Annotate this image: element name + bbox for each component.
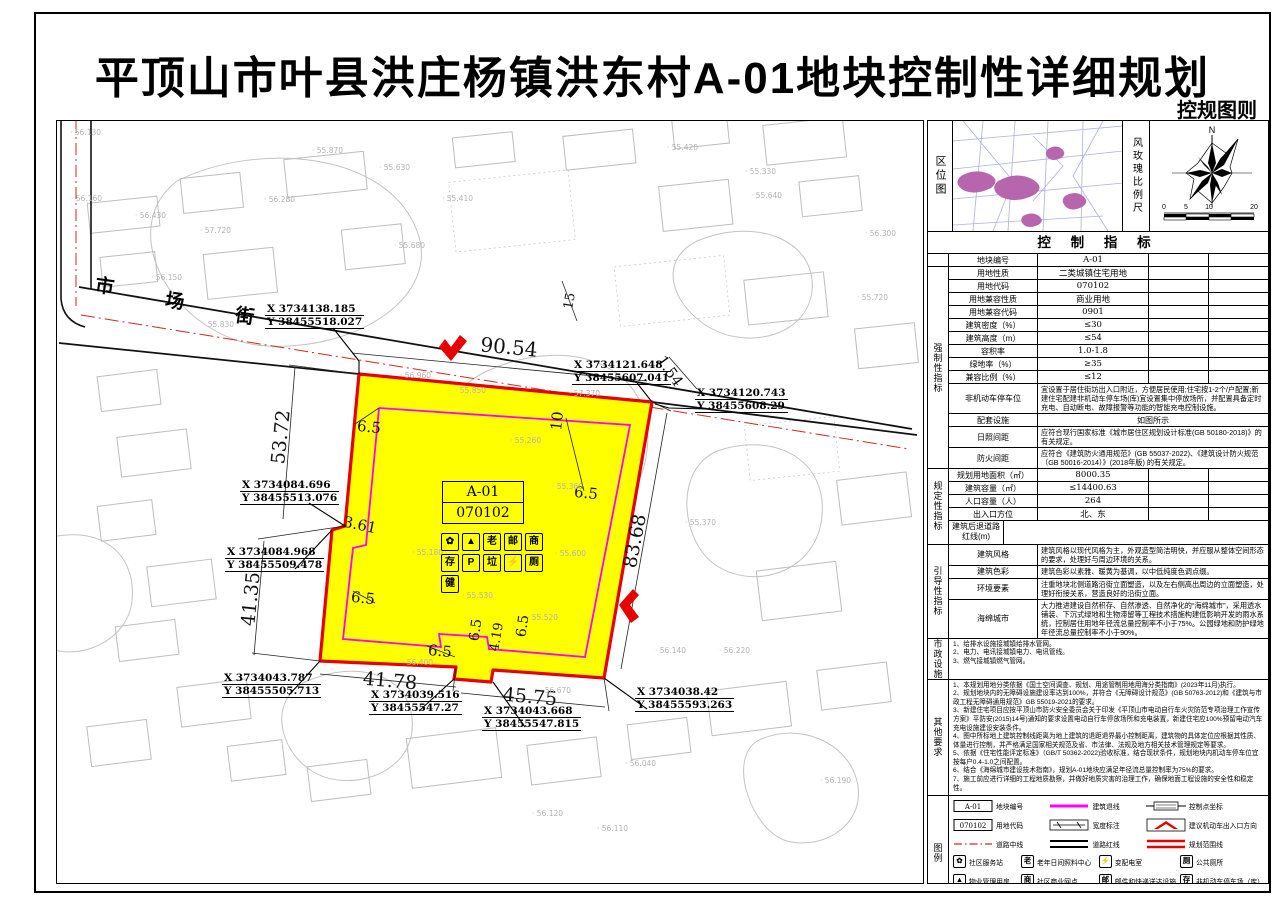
row-value: 应符合《建筑防火通用规范》(GB 55037-2022)、《建筑设计防火规范（G… — [1038, 448, 1268, 468]
row-label: 非机动车停车位 — [949, 384, 1038, 413]
property-management-icon: ▲ — [462, 533, 480, 551]
mail-delivery-icon: 邮 — [504, 533, 522, 551]
requirement-line: 2、电力、电讯接城镇电力、电讯管线。 — [953, 649, 1264, 658]
legend-item: 邮邮件和快递送达设施 — [1099, 874, 1178, 883]
empty-cell — [1209, 280, 1268, 292]
spot-elevation: · 55.360 — [552, 482, 583, 491]
dimension-label: 10 — [547, 411, 567, 432]
legend-icon-items: ✿社区服务站老老年日间照料中心⚡变配电室厕公共厕所▲物业管理用房商社区商业网点邮… — [953, 855, 1264, 883]
legend-item: ⚡变配电室 — [1099, 855, 1178, 868]
empty-cell — [1209, 371, 1268, 383]
spot-elevation: · 56.220 — [719, 646, 750, 655]
scale-tick: 0 — [1162, 204, 1166, 211]
empty-cell — [1209, 332, 1268, 344]
legend-item: 存非机动车停车场（库） — [1180, 874, 1264, 883]
dimension-label: 83.68 — [619, 512, 651, 570]
row-value: A-01 — [1038, 254, 1149, 266]
row-label: 用地兼容代码 — [949, 306, 1038, 318]
empty-cell — [1149, 469, 1209, 481]
requirement-line: 3、燃气接城镇燃气管网。 — [953, 658, 1264, 667]
legend-item-label: 邮件和快递送达设施 — [1115, 876, 1176, 883]
legend-item-label: 用地代码 — [996, 820, 1023, 830]
control-point-coordinate: X 3734043.787Y 38455505.713 — [222, 672, 321, 698]
legend-item: 道路红线 — [1049, 837, 1143, 851]
legend-content: A-01地块编号建筑退线控制点坐标070102用地代码宽度标注建议机动车出入口方… — [949, 796, 1268, 883]
row-label: 日照间距 — [949, 427, 1038, 447]
elderly-daycare-icon: 老 — [1021, 855, 1034, 868]
community-business-icon: 商 — [525, 533, 543, 551]
spot-elevation: · 56.670 — [540, 686, 571, 695]
table-row: 防火间距应符合《建筑防火通用规范》(GB 55037-2022)、《建筑设计防火… — [949, 448, 1268, 468]
legend-line-items: A-01地块编号建筑退线控制点坐标070102用地代码宽度标注建议机动车出入口方… — [953, 799, 1264, 851]
table-row: 兼容比例（%）≤12 — [949, 371, 1268, 384]
control-point-coordinate: X 3734084.696Y 38455513.076 — [240, 479, 339, 505]
empty-cell — [1149, 508, 1209, 520]
scale-tick: 20 — [1250, 204, 1258, 211]
control-point-coordinate: X 3734120.743Y 38455608.29 — [695, 387, 788, 413]
row-value: ≤14400.63 — [1038, 482, 1149, 494]
table-row: 建筑容量（㎡）≤14400.63 — [949, 482, 1268, 495]
control-table: 地块编号A-01强制性指标用地性质二类城镇住宅用地用地代码070102用地兼容性… — [928, 254, 1268, 883]
section-group-label: 市政设施 — [928, 639, 949, 679]
row-label: 兼容比例（%） — [949, 371, 1038, 383]
empty-cell — [1149, 254, 1209, 266]
community-service-station-icon: ✿ — [441, 533, 459, 551]
dimension-label: 6.5 — [467, 618, 486, 642]
spot-elevation: · 55.180 — [412, 548, 443, 557]
legend-item-label: 地块编号 — [996, 801, 1023, 811]
row-value: 大力推进建设自然积存、自然渗透、自然净化的“海绵城市”，采用透水铺装、下沉式绿地… — [1038, 600, 1268, 638]
section-group-label: 引导性指标 — [928, 545, 949, 638]
empty-cell — [1209, 345, 1268, 357]
row-value: 商业用地 — [1038, 293, 1149, 305]
community-business-icon: 商 — [1021, 874, 1034, 883]
plot-label-box: A-01 070102 — [442, 481, 524, 524]
empty-cell — [1149, 332, 1209, 344]
requirement-line: 2、规划地块内的无障碍设施建设率达到100%，并符合《无障碍设计规范》(GB 5… — [953, 690, 1264, 707]
other-requirements-text: 1、本规划用地分类依据《国土空间调查、规划、用途管制用地用海分类指南》(2023… — [949, 680, 1268, 795]
coord-x: X 3734043.668 — [482, 705, 581, 718]
legend-item-label: 物业管理用房 — [969, 876, 1010, 883]
table-section: 强制性指标用地性质二类城镇住宅用地用地代码070102用地兼容性质商业用地用地兼… — [928, 267, 1268, 469]
coord-y: Y 38455593.263 — [635, 699, 734, 712]
dimension-label: 4.19 — [487, 621, 507, 652]
coord-y: Y 38455513.076 — [240, 492, 339, 505]
control-point-coordinate: X 3734038.42Y 38455593.263 — [635, 686, 734, 712]
empty-cell — [1149, 267, 1209, 279]
spot-elevation: · 55.530 — [462, 591, 493, 600]
property-management-icon: ▲ — [953, 874, 966, 883]
dimension-label: 53.72 — [267, 409, 295, 465]
coord-y: Y 38455518.027 — [265, 316, 364, 329]
section-group-label: 规定性指标 — [928, 469, 949, 544]
coord-x: X 3734084.696 — [240, 479, 339, 492]
coord-x: X 3734039.516 — [369, 689, 462, 702]
table-row: 用地兼容代码0901 — [949, 306, 1268, 319]
legend-item: 老老年日间照料中心 — [1021, 855, 1097, 868]
section-group-label — [928, 254, 949, 266]
row-label: 防火间距 — [949, 448, 1038, 468]
spot-elevation: · 57.720 — [200, 226, 231, 235]
row-label: 海绵城市 — [949, 600, 1038, 638]
legend-item: 建议机动车出入口方向 — [1146, 818, 1264, 832]
row-label: 用地代码 — [949, 280, 1038, 292]
spot-elevation: · 55.600 — [555, 549, 586, 558]
spot-elevation: · 56.110 — [597, 824, 628, 833]
row-value: ≤12 — [1038, 371, 1149, 383]
table-row: 容积率1.0-1.8 — [949, 345, 1268, 358]
control-point-coordinate: X 3734043.668Y 38455547.815 — [482, 705, 581, 731]
requirement-line: 5、依据《住宅性能评定标准》（GB/T 50362-2022)验收标准，结合现状… — [953, 750, 1264, 767]
row-value: 建筑风格以现代风格为主，外观造型简洁明快，并应服从整体空间形态的要求，处理好与周… — [1038, 545, 1268, 565]
empty-cell — [1149, 371, 1209, 383]
svg-text:A-01: A-01 — [964, 803, 981, 811]
table-row: 出入口方位北、东 — [949, 508, 1268, 521]
row-value: 北、东 — [1038, 508, 1149, 520]
spot-elevation: · 55.630 — [379, 163, 410, 172]
row-value: ≥35 — [1038, 358, 1149, 370]
spot-elevation: · 55.410 — [442, 194, 473, 203]
row-label: 建筑容量（㎡） — [949, 482, 1038, 494]
spot-elevation: · 55.330 — [745, 167, 776, 176]
spot-elevation: · 55.720 — [857, 293, 888, 302]
dimension-label: 15 — [561, 292, 579, 311]
legend-section: 图例A-01地块编号建筑退线控制点坐标070102用地代码宽度标注建议机动车出入… — [928, 796, 1268, 883]
section-group-label: 图例 — [928, 796, 949, 883]
legend-item: 建筑退线 — [1049, 799, 1143, 813]
table-section: 规定性指标规划用地面积（㎡）8000.35建筑容量（㎡）≤14400.63人口容… — [928, 469, 1268, 545]
plot-land-code: 070102 — [443, 503, 523, 523]
table-row: 人口容量（人）264 — [949, 495, 1268, 508]
info-row: 区位图 风玫瑰比例尺 — [928, 121, 1268, 232]
power-substation-icon: ⚡ — [1099, 855, 1112, 868]
empty-cell — [1209, 358, 1268, 370]
legend-item: 控制点坐标 — [1146, 799, 1264, 813]
location-map-label: 区位图 — [928, 121, 953, 231]
table-row: 建筑风格建筑风格以现代风格为主，外观造型简洁明快，并应服从整体空间形态的要求，处… — [949, 545, 1268, 566]
row-label: 容积率 — [949, 345, 1038, 357]
spot-elevation: · 55.420 — [667, 143, 698, 152]
spot-elevation: · 56.130 — [70, 128, 101, 137]
empty-cell — [1209, 293, 1268, 305]
coord-y: Y 38455607.041 — [572, 372, 671, 385]
coord-y: Y 38455608.29 — [695, 400, 788, 413]
municipal-facilities-text: 1、给排水设施接城镇给排水管网。2、电力、电讯接城镇电力、电讯管线。3、燃气接城… — [949, 639, 1268, 679]
legend-item: 宽度标注 — [1049, 818, 1143, 832]
coord-x: X 3734120.743 — [695, 387, 788, 400]
requirement-line: 4、图中所标地上建筑控制线距离为地上建筑的退距退界最小控制距离，建筑物的具体定位… — [953, 733, 1264, 750]
spot-elevation: · 56.280 — [264, 195, 295, 204]
table-section: 引导性指标建筑风格建筑风格以现代风格为主，外观造型简洁明快，并应服从整体空间形态… — [928, 545, 1268, 639]
row-label: 环境要素 — [949, 579, 1038, 599]
scale-tick: 10 — [1205, 204, 1213, 211]
table-row: 建筑高度（m）≤54 — [949, 332, 1268, 345]
legend-item: ✿社区服务站 — [953, 855, 1019, 868]
table-row: 非机动车停车位宜设置于居住街坊出入口附近，方便居民使用;住宅按1-2个/户配置;… — [949, 384, 1268, 414]
legend-item-label: 社区服务站 — [969, 857, 1003, 867]
row-label: 用地兼容性质 — [949, 293, 1038, 305]
spot-elevation: · 55.870 — [312, 146, 343, 155]
table-row: 配套设施如图所示 — [949, 414, 1268, 427]
spot-elevation: · 56.160 — [71, 194, 102, 203]
plan-map: 市场街90.5453.723.6141.3541.7845.7583.681.5… — [56, 120, 924, 884]
spot-elevation: · 55.850 — [455, 386, 486, 395]
section-group-label: 强制性指标 — [928, 267, 949, 468]
table-row: 规划用地面积（㎡）8000.35 — [949, 469, 1268, 482]
empty-cell — [1209, 254, 1268, 266]
row-label: 出入口方位 — [949, 508, 1038, 520]
table-row: 建筑色彩建筑色彩以素雅、暖黄为基调，以中低纯度色调点缀。 — [949, 566, 1268, 579]
legend-item-label: 公共厕所 — [1196, 857, 1223, 867]
legend-item-label: 道路中线 — [996, 839, 1023, 849]
row-value: 宜设置于居住街坊出入口附近，方便居民使用;住宅按1-2个/户配置;新建住宅配建非… — [1038, 384, 1268, 413]
legend-item: 070102用地代码 — [953, 818, 1047, 832]
row-label: 建筑高度（m） — [949, 332, 1038, 344]
street-name-char: 街 — [234, 300, 257, 329]
setback-block: 建筑后退道路红线(m) — [949, 521, 1268, 544]
table-row: 用地兼容性质商业用地 — [949, 293, 1268, 306]
legend-item: 厕公共厕所 — [1180, 855, 1264, 868]
legend-item-label: 建议机动车出入口方向 — [1189, 820, 1257, 830]
table-row: 绿地率（%）≥35 — [949, 358, 1268, 371]
spot-elevation: · 56.040 — [625, 759, 656, 768]
table-section: 地块编号A-01 — [928, 254, 1268, 267]
table-row: 地块编号A-01 — [949, 254, 1268, 266]
coord-y: Y 38455547.27 — [369, 702, 462, 715]
spot-elevation: · 56.430 — [135, 211, 166, 220]
empty-cell — [1149, 495, 1209, 507]
empty-cell — [1149, 306, 1209, 318]
dimension-label: 41.35 — [237, 571, 265, 627]
location-map — [953, 121, 1123, 231]
legend-item-label: 道路红线 — [1092, 839, 1119, 849]
empty-cell — [1149, 319, 1209, 331]
table-row: 用地代码070102 — [949, 280, 1268, 293]
row-value: 注重地块北侧道路沿街立面塑造，以及左右侧高出周边的立面塑造，处理好衔接关系，营造… — [1038, 579, 1268, 599]
spot-elevation: · 55.680 — [394, 241, 425, 250]
dimension-label: 6.5 — [356, 417, 382, 437]
spot-elevation: · 56.120 — [532, 809, 563, 818]
page-title: 平顶山市叶县洪庄杨镇洪东村A-01地块控制性详细规划 — [36, 42, 1269, 106]
table-row: 环境要素注重地块北侧道路沿街立面塑造，以及左右侧高出周边的立面塑造，处理好衔接关… — [949, 579, 1268, 600]
empty-cell — [1209, 495, 1268, 507]
empty-cell — [1209, 267, 1268, 279]
empty-cell — [1209, 469, 1268, 481]
dimension-label: 3.61 — [342, 513, 378, 538]
table-row: 海绵城市大力推进建设自然积存、自然渗透、自然净化的“海绵城市”，采用透水铺装、下… — [949, 600, 1268, 638]
spot-elevation: · 55.830 — [203, 320, 234, 329]
table-row: 用地性质二类城镇住宅用地 — [949, 267, 1268, 280]
legend-item-label: 社区商业网点 — [1037, 876, 1078, 883]
spot-elevation: · 56.960 — [400, 371, 431, 380]
windrose-scale-label: 风玫瑰比例尺 — [1123, 121, 1150, 231]
empty-cell — [1149, 482, 1209, 494]
plot-code: A-01 — [443, 482, 523, 503]
empty-cell — [1209, 482, 1268, 494]
car-parking-icon: P — [462, 554, 480, 572]
row-value: 1.0-1.8 — [1038, 345, 1149, 357]
requirement-line: 6、结合《海绵城市建设技术指南》，规划A-01地块应满足年径流总量控制率为75%… — [953, 767, 1264, 776]
empty-cell — [1209, 508, 1268, 520]
legend-item-label: 宽度标注 — [1092, 820, 1119, 830]
wind-rose: N — [1150, 121, 1268, 231]
control-point-coordinate: X 3734039.516Y 38455547.27 — [369, 689, 462, 715]
spot-elevation: · 55.260 — [510, 436, 541, 445]
legend-item-label: 老年日间照料中心 — [1037, 857, 1091, 867]
row-label: 规划用地面积（㎡） — [949, 469, 1038, 481]
control-point-coordinate: X 3734084.968Y 38455509.478 — [225, 546, 324, 572]
legend-item: 商社区商业网点 — [1021, 874, 1097, 883]
spot-elevation: · 56.300 — [865, 229, 896, 238]
row-value: ≤30 — [1038, 319, 1149, 331]
row-value: 8000.35 — [1038, 469, 1149, 481]
spot-elevation: · 55.520 — [527, 613, 558, 622]
coord-x: X 3734043.787 — [222, 672, 321, 685]
coord-y: Y 38455505.713 — [222, 685, 321, 698]
legend-item-label: 建筑退线 — [1092, 801, 1119, 811]
row-label: 用地性质 — [949, 267, 1038, 279]
row-value: 建筑色彩以素雅、暖黄为基调，以中低纯度色调点缀。 — [1038, 566, 1268, 578]
control-point-coordinate: X 3734138.185Y 38455518.027 — [265, 303, 364, 329]
row-value: 070102 — [1038, 280, 1149, 292]
row-label: 地块编号 — [949, 254, 1038, 266]
row-label: 配套设施 — [949, 414, 1038, 426]
public-toilet-icon: 厕 — [1180, 855, 1193, 868]
street-name-char: 市 — [94, 270, 117, 299]
legend-item: ▲物业管理用房 — [953, 874, 1019, 883]
requirement-line: 7、施工前应进行详细的工程地质勘察，并做好地质灾害的治理工作，确保地面工程设施的… — [953, 776, 1264, 793]
spot-elevation: · 55.370 — [685, 518, 716, 527]
coord-y: Y 38455547.815 — [482, 718, 581, 731]
row-label: 人口容量（人） — [949, 495, 1038, 507]
public-toilet-icon: 厕 — [525, 554, 543, 572]
legend-item-label: 变配电室 — [1115, 857, 1142, 867]
elderly-daycare-icon: 老 — [483, 533, 501, 551]
requirement-line: 3、新建住宅项目应按平顶山市防火安全委员会关于印发《平顶山市电动自行车火灾防范专… — [953, 707, 1264, 733]
spot-elevation: · 56.400 — [402, 658, 433, 667]
row-value: 264 — [1038, 495, 1149, 507]
other-requirements-section: 其他要求1、本规划用地分类依据《国土空间调查、规划、用途管制用地用海分类指南》(… — [928, 680, 1268, 796]
municipal-facilities-section: 市政设施1、给排水设施接城镇给排水管网。2、电力、电讯接城镇电力、电讯管线。3、… — [928, 639, 1268, 680]
row-label: 建筑色彩 — [949, 566, 1038, 578]
spot-elevation: · 56.150 — [151, 273, 182, 282]
empty-cell — [1149, 293, 1209, 305]
legend-item-label: 控制点坐标 — [1189, 801, 1223, 811]
control-point-coordinate: X 3734121.648Y 38455607.041 — [572, 359, 671, 385]
empty-cell — [1149, 358, 1209, 370]
coord-x: X 3734084.968 — [225, 546, 324, 559]
coord-x: X 3734038.42 — [635, 686, 734, 699]
row-value: 如图所示 — [1038, 414, 1268, 426]
row-label: 绿地率（%） — [949, 358, 1038, 370]
legend-item-label: 非机动车停车场（库） — [1196, 876, 1264, 883]
spot-elevation: · 56.190 — [820, 776, 851, 785]
garbage-collection-icon: 垃 — [483, 554, 501, 572]
table-row: 日照间距应符合现行国家标准《城市居住区规划设计标准(GB 50180-2018)… — [949, 427, 1268, 448]
community-service-station-icon: ✿ — [953, 855, 966, 868]
plan-sheet: 平顶山市叶县洪庄杨镇洪东村A-01地块控制性详细规划 控规图则 — [34, 12, 1271, 893]
page-subtitle: 控规图则 — [1177, 94, 1257, 123]
scale-tick: 5 — [1184, 204, 1188, 211]
row-value: ≤54 — [1038, 332, 1149, 344]
row-value: 0901 — [1038, 306, 1149, 318]
power-substation-icon: ⚡ — [504, 554, 522, 572]
row-label: 建筑风格 — [949, 545, 1038, 565]
row-label: 建筑密度（%） — [949, 319, 1038, 331]
outdoor-fitness-icon: 健 — [441, 575, 459, 593]
setback-label: 建筑后退道路红线(m) — [949, 521, 1004, 544]
spot-elevation: · 55.640 — [751, 191, 782, 200]
control-table-header: 控 制 指 标 — [928, 232, 1268, 254]
legend-item: 道路中线 — [953, 837, 1047, 851]
row-value: 二类城镇住宅用地 — [1038, 267, 1149, 279]
north-label: N — [1209, 125, 1216, 135]
dimension-label: 90.54 — [479, 332, 538, 361]
street-name-char: 场 — [164, 285, 187, 314]
section-group-label: 其他要求 — [928, 680, 949, 795]
spot-elevation: · 56.140 — [655, 646, 686, 655]
spot-elevation: · 57.370 — [569, 389, 600, 398]
mail-delivery-icon: 邮 — [1099, 874, 1112, 883]
bicycle-parking-icon: 存 — [1180, 874, 1193, 883]
coord-x: X 3734138.185 — [265, 303, 364, 316]
table-row: 建筑密度（%）≤30 — [949, 319, 1268, 332]
empty-cell — [1209, 319, 1268, 331]
empty-cell — [1209, 306, 1268, 318]
coord-x: X 3734121.648 — [572, 359, 671, 372]
svg-text:070102: 070102 — [960, 822, 987, 830]
row-value: 应符合现行国家标准《城市居住区规划设计标准(GB 50180-2018)》的有关… — [1038, 427, 1268, 447]
bicycle-parking-icon: 存 — [441, 554, 459, 572]
table-row: 建筑后退道路红线(m) — [949, 521, 1268, 544]
legend-item: A-01地块编号 — [953, 799, 1047, 813]
dimension-label: 6.5 — [350, 588, 376, 608]
coord-y: Y 38455509.478 — [225, 559, 324, 572]
empty-cell — [1149, 345, 1209, 357]
empty-cell — [1149, 280, 1209, 292]
control-panel: 区位图 风玫瑰比例尺 — [927, 120, 1269, 884]
legend-item-label: 规划范围线 — [1189, 839, 1223, 849]
legend-item: 规划范围线 — [1146, 837, 1264, 851]
